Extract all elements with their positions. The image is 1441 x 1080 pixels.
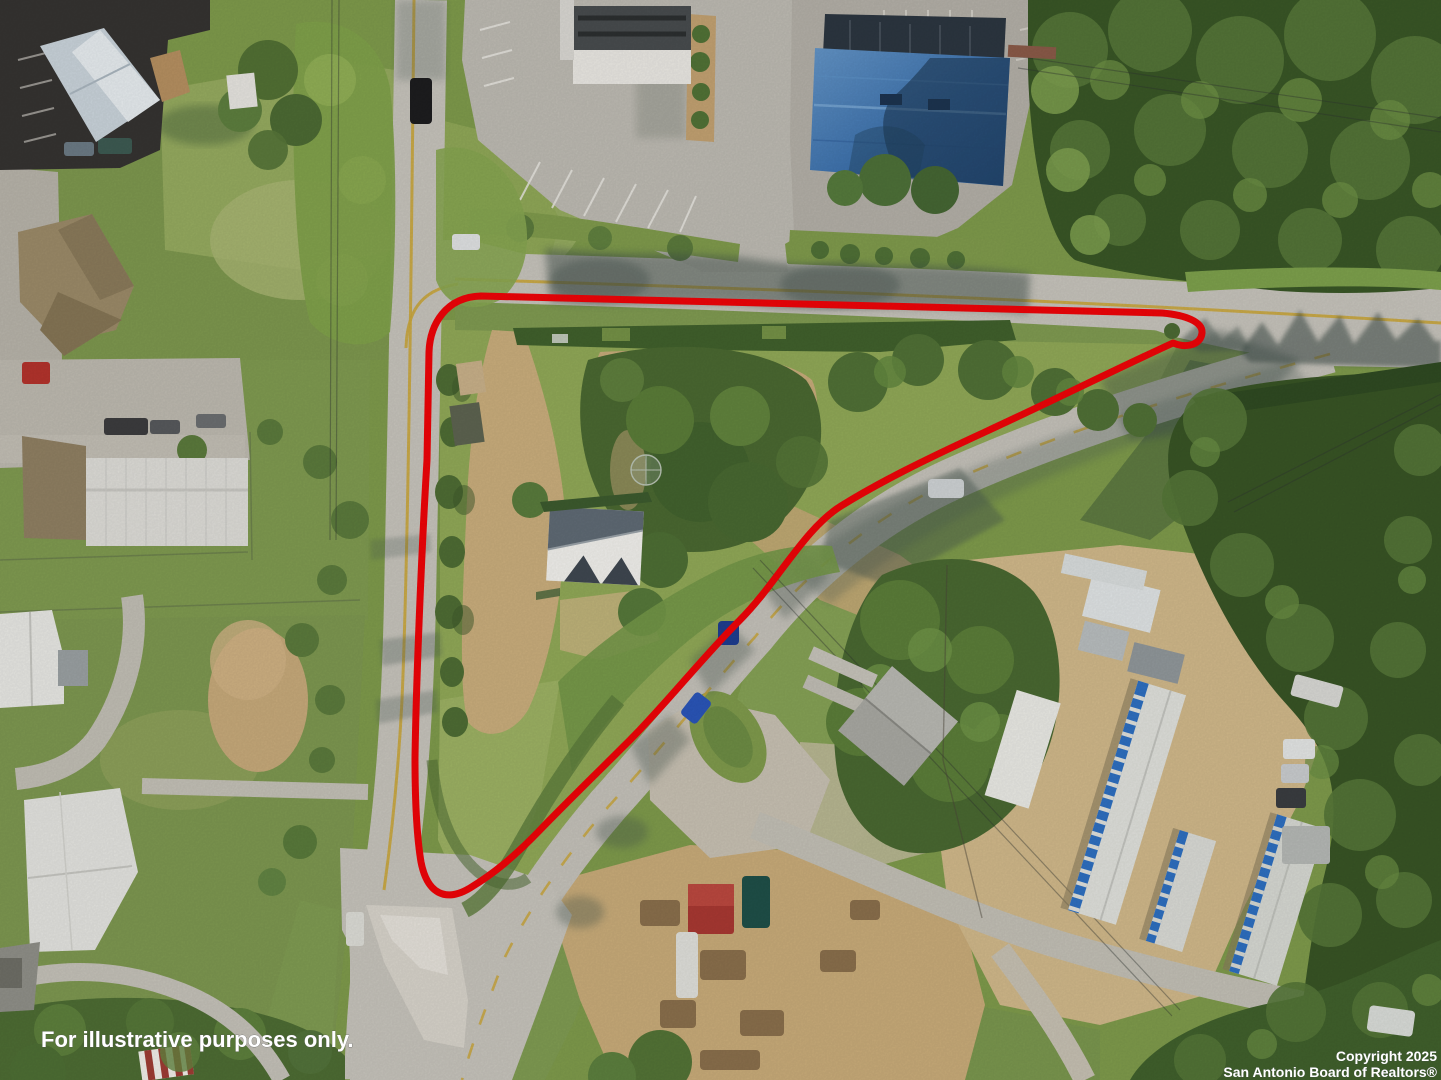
svg-text:San Antonio Board of Realtors®: San Antonio Board of Realtors® (1223, 1064, 1437, 1080)
svg-text:For illustrative purposes only: For illustrative purposes only. (41, 1027, 354, 1052)
svg-text:Copyright 2025: Copyright 2025 (1336, 1048, 1437, 1064)
